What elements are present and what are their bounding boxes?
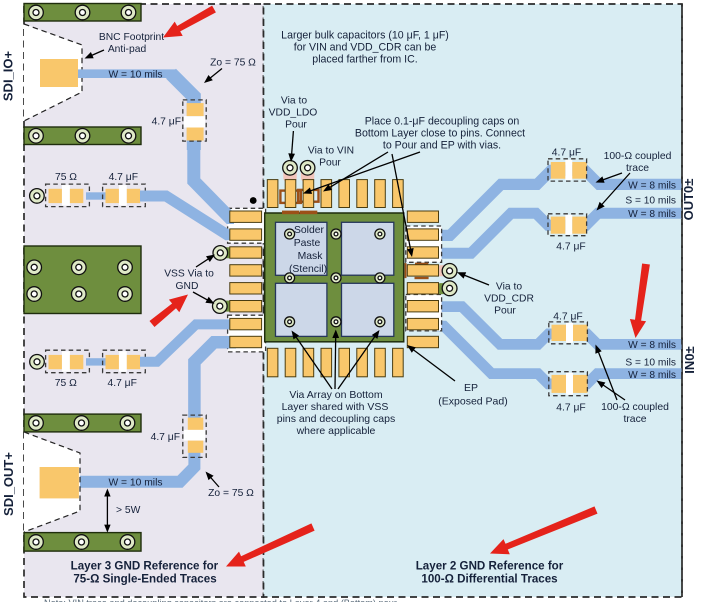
svg-text:Layer 3 GND Reference for: Layer 3 GND Reference for (71, 560, 219, 573)
svg-text:4.7 μF: 4.7 μF (552, 148, 581, 159)
svg-text:W = 8 mils: W = 8 mils (628, 370, 676, 381)
svg-text:W = 8 mils: W = 8 mils (628, 340, 676, 351)
svg-text:100-Ω coupled: 100-Ω coupled (601, 402, 669, 413)
svg-text:Mask: Mask (298, 251, 324, 262)
svg-text:100-Ω coupled: 100-Ω coupled (604, 151, 672, 162)
svg-text:for VIN and VDD_CDR can be: for VIN and VDD_CDR can be (294, 42, 437, 54)
svg-text:(Exposed Pad): (Exposed Pad) (438, 396, 507, 408)
svg-text:Layer 2 GND Reference for: Layer 2 GND Reference for (416, 560, 564, 573)
svg-text:Layer shared with VSS: Layer shared with VSS (282, 401, 389, 413)
svg-text:OUT0±: OUT0± (681, 179, 696, 221)
svg-text:Larger bulk capacitors (10 μF,: Larger bulk capacitors (10 μF, 1 μF) (281, 30, 449, 42)
svg-text:placed farther from IC.: placed farther from IC. (312, 54, 417, 66)
svg-text:S = 10 mils: S = 10 mils (625, 357, 676, 368)
svg-text:W = 10 mils: W = 10 mils (108, 478, 162, 489)
svg-text:100-Ω Differential Traces: 100-Ω Differential Traces (421, 573, 557, 586)
svg-text:75-Ω Single-Ended Traces: 75-Ω Single-Ended Traces (73, 573, 216, 586)
svg-text:Anti-pad: Anti-pad (108, 44, 147, 55)
svg-text:75 Ω: 75 Ω (55, 172, 77, 183)
svg-text:Solder: Solder (294, 225, 325, 236)
svg-text:S = 10 mils: S = 10 mils (625, 196, 676, 207)
svg-text:Zo = 75 Ω: Zo = 75 Ω (210, 58, 256, 69)
svg-text:Pour: Pour (285, 120, 307, 131)
svg-text:W = 10 mils: W = 10 mils (108, 70, 162, 81)
svg-text:SDI_OUT+: SDI_OUT+ (1, 452, 16, 516)
svg-text:trace: trace (623, 414, 646, 425)
svg-text:W = 8 mils: W = 8 mils (628, 180, 676, 191)
svg-text:trace: trace (626, 163, 649, 174)
svg-text:where applicable: where applicable (296, 425, 376, 437)
svg-text:VDD_LDO: VDD_LDO (269, 108, 318, 119)
svg-text:4.7 μF: 4.7 μF (107, 378, 136, 389)
svg-text:Paste: Paste (294, 238, 321, 249)
svg-text:SDI_IO+: SDI_IO+ (1, 50, 16, 101)
svg-text:75 Ω: 75 Ω (55, 378, 77, 389)
svg-text:to Pour and EP with vias.: to Pour and EP with vias. (383, 140, 501, 152)
svg-text:4.7 μF: 4.7 μF (109, 172, 138, 183)
svg-text:4.7 μF: 4.7 μF (556, 403, 585, 414)
svg-text:Pour: Pour (319, 158, 341, 169)
svg-text:Note: VIN trace and decoupling: Note: VIN trace and decoupling capacitor… (44, 598, 399, 602)
svg-text:EP: EP (464, 382, 478, 394)
svg-text:4.7 μF: 4.7 μF (556, 242, 585, 253)
svg-text:4.7 μF: 4.7 μF (152, 117, 181, 128)
svg-text:pins and decoupling caps: pins and decoupling caps (277, 413, 396, 425)
svg-text:W = 8 mils: W = 8 mils (628, 209, 676, 220)
svg-text:Via to: Via to (496, 282, 522, 293)
svg-text:> 5W: > 5W (116, 505, 141, 516)
svg-text:4.7 μF: 4.7 μF (151, 432, 180, 443)
svg-text:Via to VIN: Via to VIN (308, 146, 354, 157)
svg-text:(Stencil): (Stencil) (289, 264, 327, 275)
svg-text:Via to: Via to (281, 96, 307, 107)
svg-text:Pour: Pour (494, 306, 516, 317)
svg-text:GND: GND (176, 281, 199, 292)
svg-text:IN0±: IN0± (682, 346, 697, 373)
svg-text:Bottom Layer close to pins. Co: Bottom Layer close to pins. Connect (355, 128, 525, 140)
svg-text:VDD_CDR: VDD_CDR (484, 294, 534, 305)
svg-text:VSS Via to: VSS Via to (164, 269, 214, 280)
svg-text:Zo = 75 Ω: Zo = 75 Ω (208, 488, 254, 499)
svg-text:Via Array on Bottom: Via Array on Bottom (289, 389, 382, 401)
svg-text:BNC Footprint: BNC Footprint (99, 32, 164, 43)
svg-text:Place 0.1-μF decoupling caps o: Place 0.1-μF decoupling caps on (365, 116, 520, 128)
svg-text:4.7 μF: 4.7 μF (553, 312, 582, 323)
